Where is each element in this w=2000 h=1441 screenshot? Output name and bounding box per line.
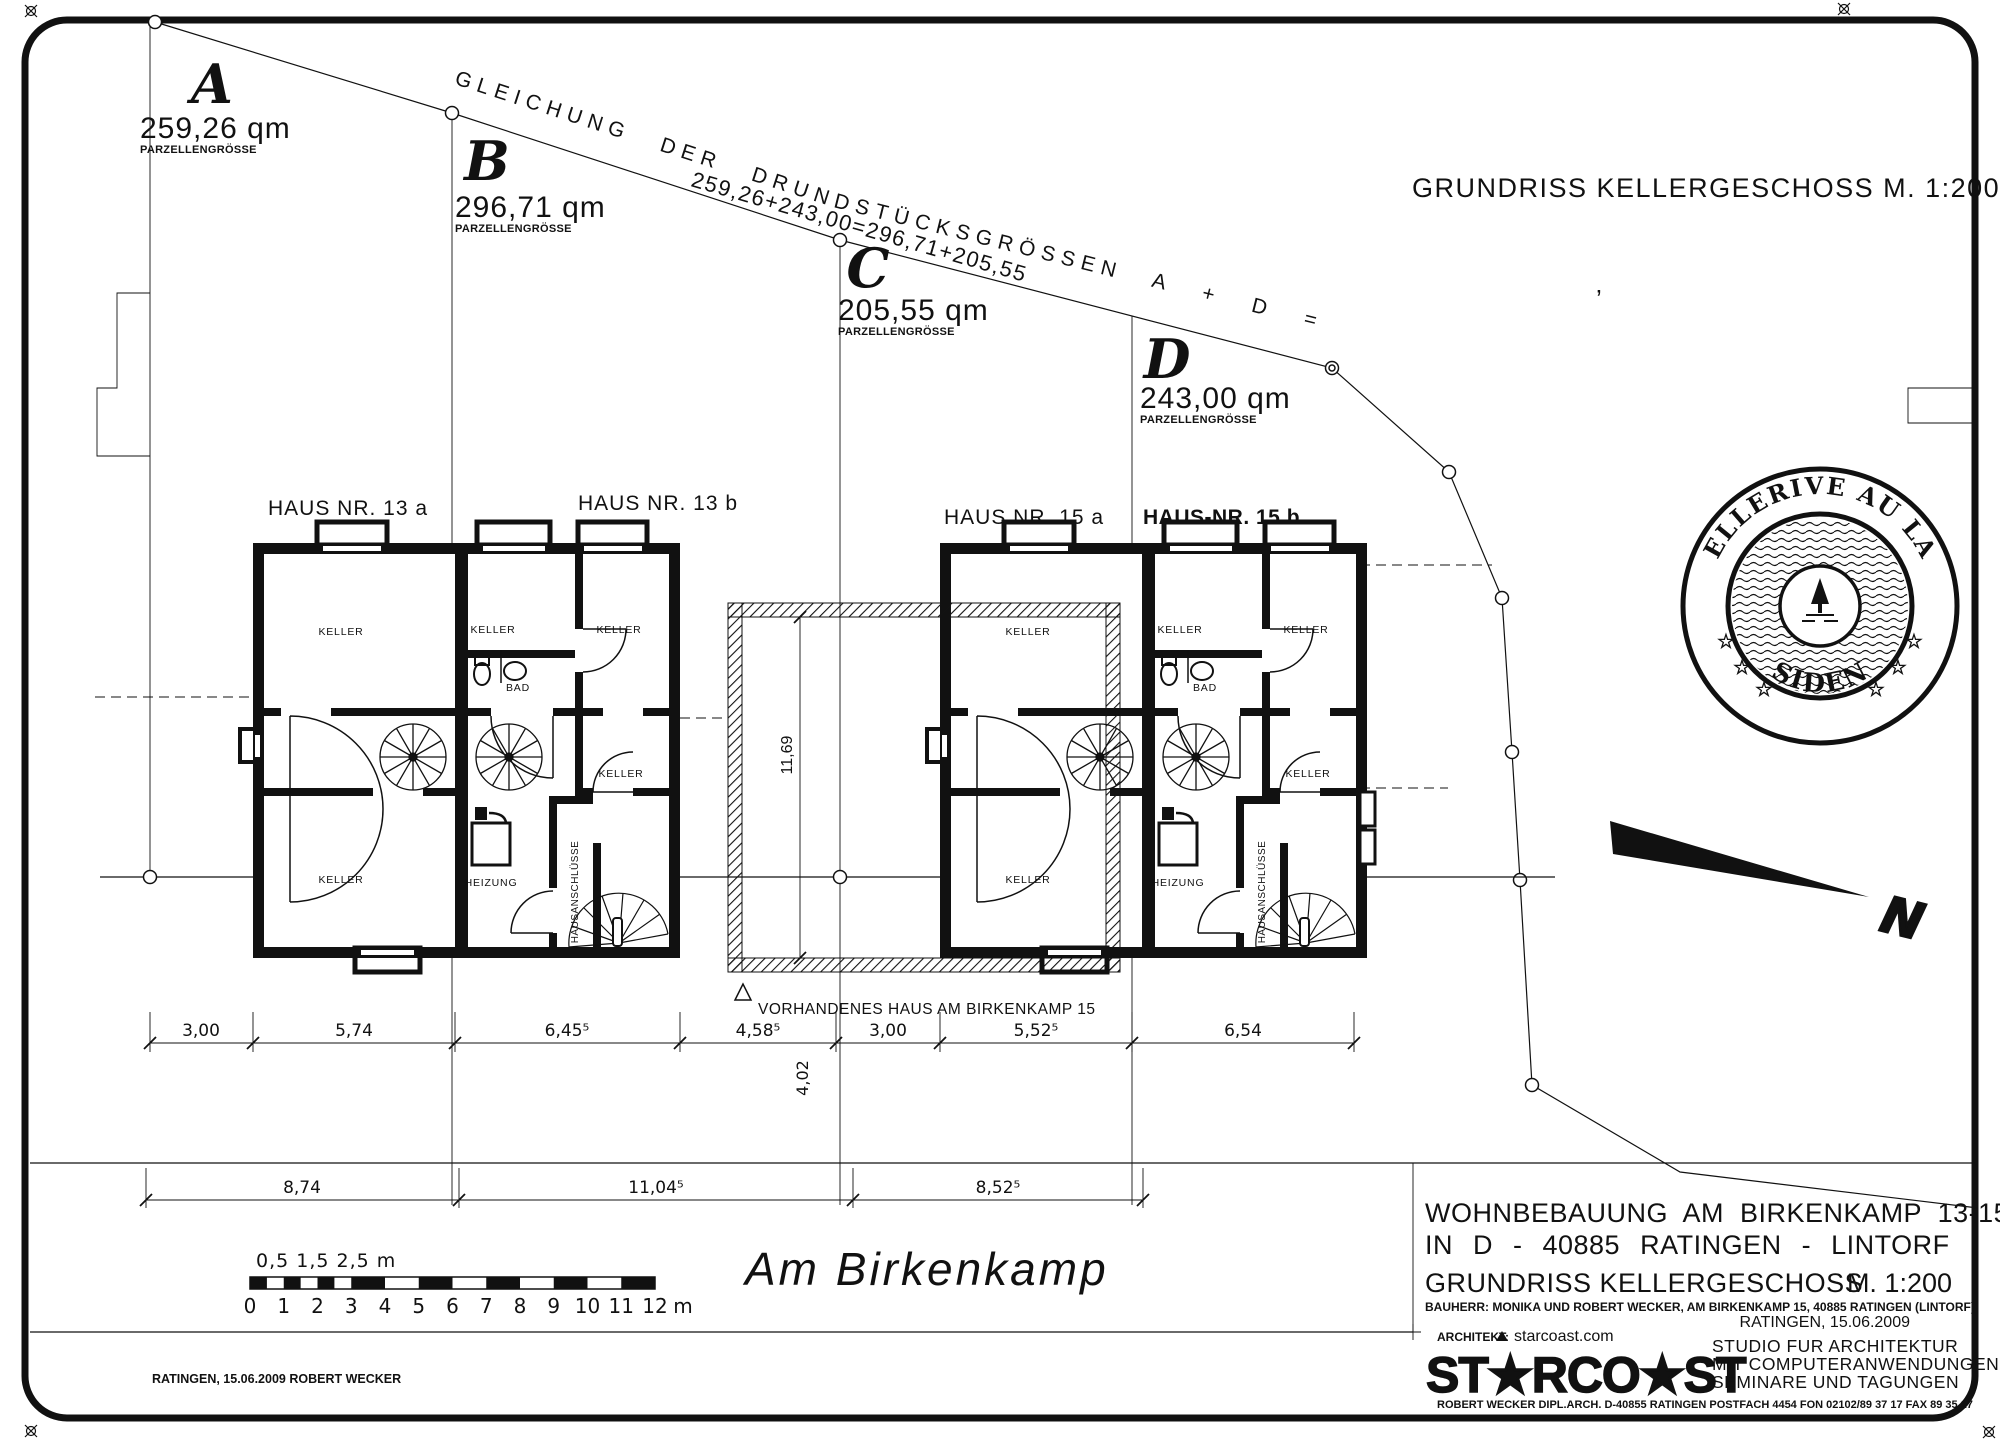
scale-bar: 0,5 1,5 2,5 m 0 1 2 3 4 5 6 7 8 9 10 11 … [244,1250,693,1318]
title-block: WOHNBEBAUUNG AM BIRKENKAMP 13-15 IN D - … [1425,1198,2000,1411]
scale-tick: 1 [277,1294,290,1318]
dim-value: 3,00 [182,1021,220,1041]
scale-unit: m [673,1294,692,1318]
stamp-star-icon: ☆ [1733,655,1751,679]
date-line: RATINGEN, 15.06.2009 [1740,1314,1911,1331]
parcel-caption: PARZELLENGRÖSSE [838,325,955,338]
parcel-letter: B [462,129,510,193]
scale-tick: 2 [311,1294,324,1318]
dim-value: 5,74 [335,1021,373,1041]
parcel-caption: PARZELLENGRÖSSE [140,143,257,156]
dim-value: 11,04⁵ [628,1178,683,1198]
stamp-star-icon: ☆ [1755,677,1773,701]
contact-line: ROBERT WECKER DIPL.ARCH. D-40855 RATINGE… [1437,1399,1973,1411]
dim-value-vertical: 4,02 [793,1060,812,1096]
parcel-area: 296,71 qm [455,191,606,224]
dim-value: 8,74 [283,1178,321,1198]
house-label-13a: HAUS NR. 13 a [268,497,428,520]
parcel-area: 243,00 qm [1140,382,1291,415]
building-13 [240,522,680,972]
register-mark-icon [1838,3,1850,15]
street-name: Am Birkenkamp [742,1243,1109,1295]
stray-mark: ’ [1596,284,1602,314]
scale-tick: 11 [609,1294,634,1318]
stamp-star-icon: ☆ [1905,629,1923,653]
north-arrow-icon [1610,821,1869,897]
dimension-row-1: 3,00 5,74 6,45⁵ 4,58⁵ 3,00 5,52⁵ 6,54 4,… [144,1012,1360,1096]
scale-tick: 10 [575,1294,600,1318]
website: starcoast.com [1514,1328,1614,1345]
parcel-d-label: D 243,00 qm PARZELLENGRÖSSE [1140,327,1291,426]
studio-line2: MIT COMPUTERANWENDUNGEN [1712,1354,1999,1374]
parcel-b-label: B 296,71 qm PARZELLENGRÖSSE [455,129,606,235]
parcel-a-label: A 259,26 qm PARZELLENGRÖSSE [140,52,291,156]
scale-tick: 6 [446,1294,459,1318]
cross-mark-icon [1405,1324,1421,1340]
parcel-area: 205,55 qm [838,294,989,327]
dim-value: 5,52⁵ [1014,1021,1059,1041]
plan-name: GRUNDRISS KELLERGESCHOSS [1425,1268,1863,1298]
light-well [1360,830,1375,864]
scale-tick: 9 [547,1294,560,1318]
studio-line3: SEMINARE UND TAGUNGEN [1712,1372,1959,1392]
site-plan-drawing: KELLER KELLER KELLER KELLER BAD KELLER H… [0,0,2000,1441]
scale-bar-sub-label: 0,5 1,5 2,5 m [256,1250,396,1272]
dim-value: 3,00 [869,1021,907,1041]
parcel-caption: PARZELLENGRÖSSE [455,222,572,235]
north-label: N [1875,885,1930,951]
project-title-line2: IN D - 40885 RATINGEN - LINTORF [1425,1230,1950,1260]
stamp-star-icon: ☆ [1867,677,1885,701]
footer-signature: RATINGEN, 15.06.2009 ROBERT WECKER [152,1372,401,1386]
scale-tick: 7 [480,1294,493,1318]
scale-tick: 3 [345,1294,358,1318]
stamp-arc-top: BELLERIVE AU LAC [0,0,1943,564]
register-mark-icon [25,5,37,17]
drawing-title: GRUNDRISS KELLERGESCHOSS M. 1:200 [1412,173,2000,203]
dimension-row-2: 8,74 11,04⁵ 8,52⁵ [140,1168,1149,1208]
light-well [1360,792,1375,826]
drawing-sheet: KELLER KELLER KELLER KELLER BAD KELLER H… [0,0,2000,1441]
plan-scale: M. 1:200 [1847,1268,1952,1298]
studio-line1: STUDIO FUR ARCHITEKTUR [1712,1336,1958,1356]
architekt-label: ARCHITEKT: [1437,1330,1509,1344]
dim-value: 8,52⁵ [976,1178,1021,1198]
bauherr-line: BAUHERR: MONIKA UND ROBERT WECKER, AM BI… [1425,1300,1975,1314]
triangle-marker-icon [735,984,751,1000]
scale-tick: 4 [379,1294,392,1318]
starcoast-logo: ST★RCO★ST [1426,1347,1746,1403]
building-15 [927,522,1367,972]
house-label-13b: HAUS NR. 13 b [578,492,738,515]
dim-value: 4,58⁵ [736,1021,781,1041]
register-mark-icon [1983,1426,1995,1438]
dim-value: 6,45⁵ [545,1021,590,1041]
scale-tick: 12 [642,1294,667,1318]
register-mark-icon [25,1425,37,1437]
stamp-star-icon: ☆ [1889,655,1907,679]
parcel-letter: C [847,236,890,300]
parcel-caption: PARZELLENGRÖSSE [1140,413,1257,426]
existing-house-label: VORHANDENES HAUS AM BIRKENKAMP 15 [758,1001,1096,1018]
parcel-letter: A [186,52,233,116]
scale-tick: 8 [514,1294,527,1318]
project-title-line1: WOHNBEBAUUNG AM BIRKENKAMP 13-15 [1425,1198,2000,1228]
dim-value: 6,54 [1224,1021,1262,1041]
north-arrow: N [1610,821,1930,952]
parcel-area: 259,26 qm [140,112,291,145]
scale-tick: 0 [244,1294,257,1318]
scale-tick: 5 [412,1294,425,1318]
stamp-star-icon: ☆ [1717,629,1735,653]
existing-house-height-dim: 11,69 [779,735,796,774]
